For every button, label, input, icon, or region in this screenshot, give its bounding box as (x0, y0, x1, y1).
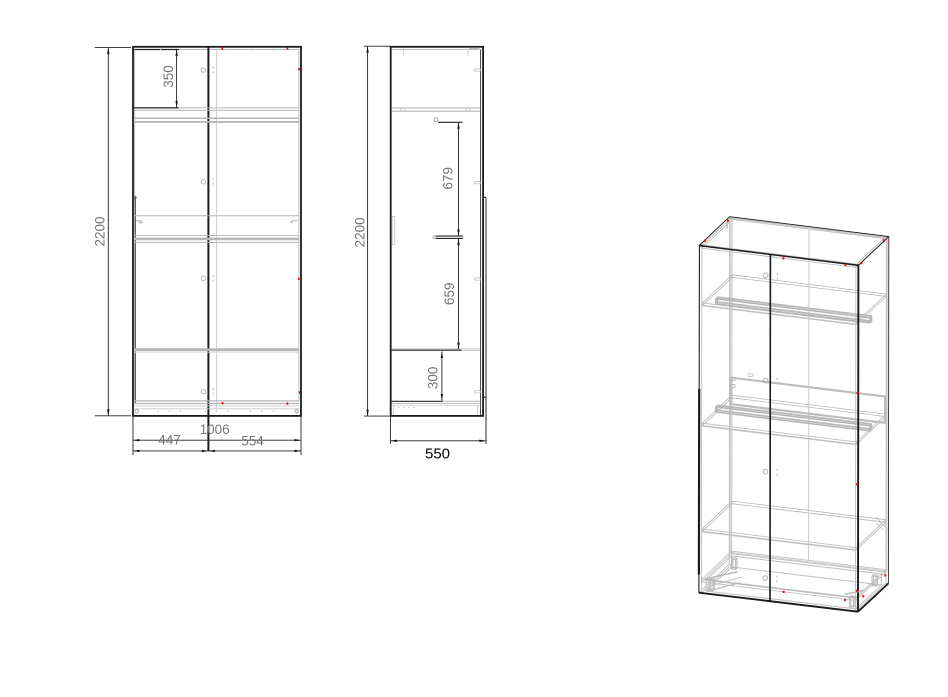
svg-text:350: 350 (161, 65, 176, 88)
svg-text:300: 300 (426, 367, 441, 390)
svg-text:679: 679 (441, 167, 456, 190)
svg-text:659: 659 (442, 283, 457, 306)
svg-text:2200: 2200 (352, 217, 367, 247)
svg-text:550: 550 (425, 446, 450, 463)
svg-text:1006: 1006 (200, 422, 230, 437)
svg-text:554: 554 (241, 433, 264, 448)
svg-text:447: 447 (158, 433, 181, 448)
svg-text:2200: 2200 (93, 216, 108, 246)
